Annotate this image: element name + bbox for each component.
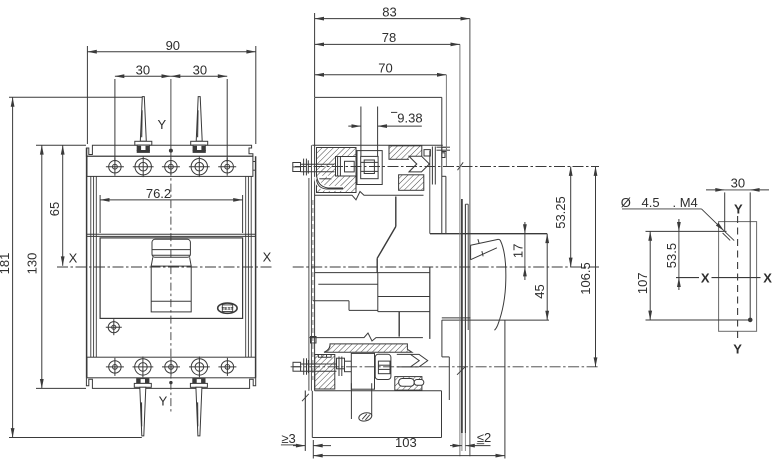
svg-text:. M4: . M4 — [673, 195, 698, 210]
svg-text:30: 30 — [731, 176, 745, 191]
svg-text:Ø: Ø — [621, 195, 631, 210]
svg-text:78: 78 — [382, 30, 396, 45]
svg-text:X: X — [763, 270, 772, 285]
svg-text:TEST: TEST — [222, 306, 234, 311]
svg-text:≤2: ≤2 — [477, 430, 491, 445]
svg-text:53.25: 53.25 — [553, 196, 568, 229]
svg-text:≥3: ≥3 — [281, 431, 295, 446]
svg-text:30: 30 — [136, 63, 150, 78]
svg-text:Y: Y — [157, 117, 166, 132]
svg-text:65: 65 — [47, 202, 62, 216]
svg-text:76.2: 76.2 — [146, 186, 171, 201]
svg-text:106.5: 106.5 — [578, 262, 593, 295]
svg-text:Y: Y — [733, 342, 742, 357]
svg-text:107: 107 — [635, 272, 650, 294]
svg-text:17: 17 — [511, 244, 526, 258]
svg-text:X: X — [701, 270, 710, 285]
svg-text:X: X — [263, 250, 272, 265]
svg-text:Y: Y — [159, 394, 168, 409]
svg-text:4.5: 4.5 — [642, 195, 660, 210]
svg-text:83: 83 — [382, 4, 396, 19]
svg-text:45: 45 — [532, 284, 547, 298]
svg-text:130: 130 — [24, 253, 39, 275]
svg-text:181: 181 — [0, 253, 12, 275]
svg-text:30: 30 — [193, 63, 207, 78]
svg-text:Y: Y — [734, 202, 743, 217]
svg-text:53.5: 53.5 — [664, 243, 679, 268]
svg-text:X: X — [69, 251, 78, 266]
svg-text:70: 70 — [378, 61, 392, 76]
svg-text:103: 103 — [395, 435, 417, 450]
svg-text:90: 90 — [166, 38, 180, 53]
svg-text:9.38: 9.38 — [397, 111, 422, 126]
